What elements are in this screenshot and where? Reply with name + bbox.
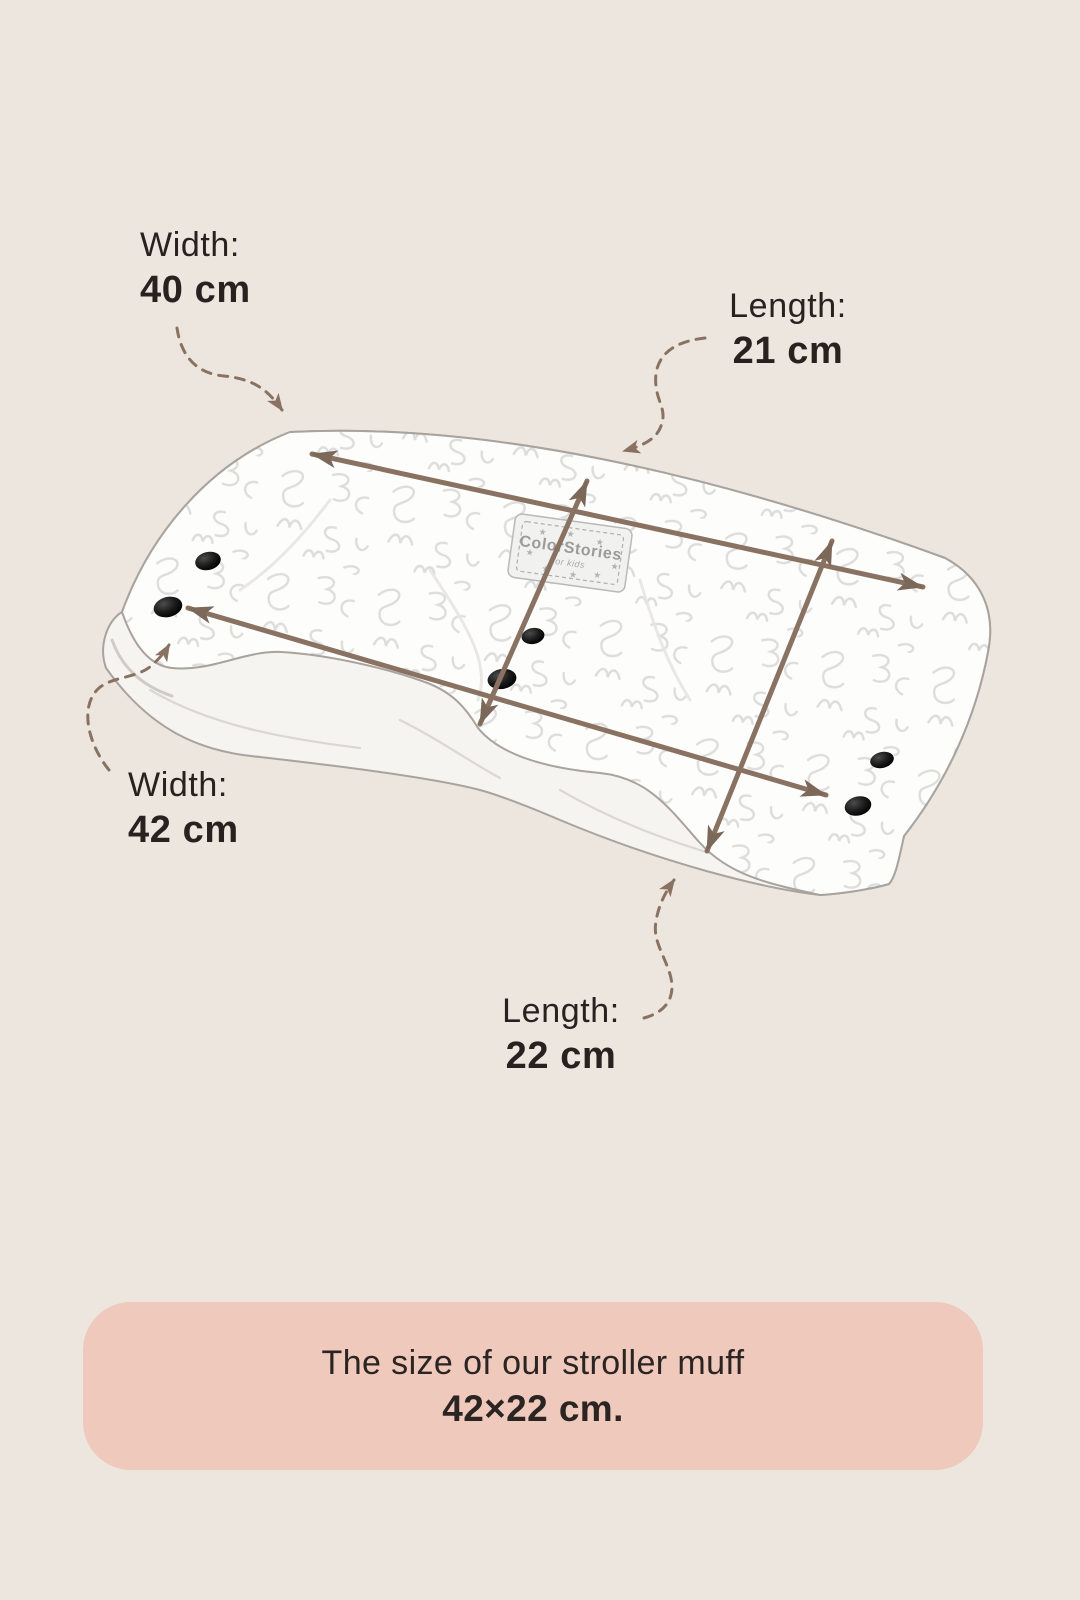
measurement-top-width: Width: 40 cm <box>140 228 251 309</box>
measurement-value: 22 cm <box>441 1037 681 1075</box>
banner-size-value: 42×22 cm. <box>442 1390 624 1427</box>
connector-arrow-width-40 <box>177 328 282 410</box>
star-icon: ★ <box>593 569 602 580</box>
banner-text: The size of our stroller muff <box>322 1346 745 1380</box>
measurement-left-width: Width: 42 cm <box>128 768 239 849</box>
measurement-top-length: Length: 21 cm <box>668 289 908 370</box>
measurement-label: Length: <box>668 289 908 323</box>
measurement-label: Width: <box>140 228 251 262</box>
infographic-stage: ColorStories for kids ★ ★ ★ ★ ★ ★ ★ ★ <box>0 0 1080 1600</box>
star-icon: ★ <box>538 526 547 537</box>
measurement-label: Width: <box>128 768 239 802</box>
star-icon: ★ <box>610 561 619 572</box>
star-icon: ★ <box>568 569 577 580</box>
star-icon: ★ <box>595 537 604 548</box>
size-summary-banner: The size of our stroller muff 42×22 cm. <box>83 1302 983 1470</box>
measurement-bottom-length: Length: 22 cm <box>441 994 681 1075</box>
measurement-value: 21 cm <box>668 332 908 370</box>
measurement-value: 42 cm <box>128 811 239 849</box>
measurement-value: 40 cm <box>140 271 251 309</box>
measurement-label: Length: <box>441 994 681 1028</box>
star-icon: ★ <box>525 547 534 558</box>
